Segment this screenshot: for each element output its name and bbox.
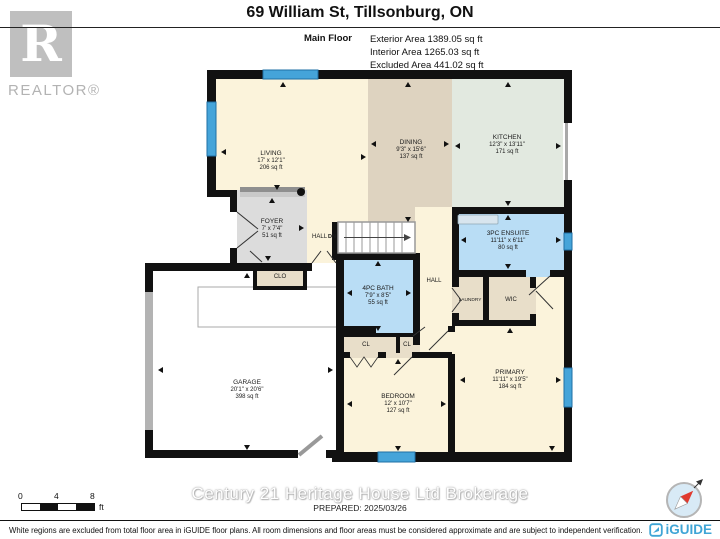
room-name: BEDROOM xyxy=(381,393,415,401)
iguide-logo: iGUIDE xyxy=(649,522,712,537)
hall-upper-label: HALL DN xyxy=(312,234,336,240)
room-dims: 11'11" x 6'11" xyxy=(487,238,530,245)
room-name: 4PC BATH xyxy=(362,285,393,293)
room-dims: 20'1" x 20'6" xyxy=(231,387,264,394)
room-dims: 12'3" x 13'11" xyxy=(489,142,525,149)
room-label-garage: GARAGE 20'1" x 20'6" 398 sq ft xyxy=(231,379,264,401)
garage-bulkhead-outline xyxy=(198,287,338,327)
iguide-wordmark: iGUIDE xyxy=(665,522,712,537)
room-area: 80 sq ft xyxy=(487,245,530,252)
room-name: LIVING xyxy=(257,150,284,158)
room-label-ensuite: 3PC ENSUITE 11'11" x 6'11" 80 sq ft xyxy=(487,230,530,252)
brokerage-watermark: Century 21 Heritage House Ltd Brokerage xyxy=(0,484,720,504)
floorplan-canvas xyxy=(0,0,720,539)
room-name: GARAGE xyxy=(231,379,264,387)
room-dims: 7'9" x 8'5" xyxy=(362,293,393,300)
room-label-living: LIVING 17' x 12'1" 206 sq ft xyxy=(257,150,284,172)
room-area: 398 sq ft xyxy=(231,394,264,401)
room-name: PRIMARY xyxy=(492,369,527,377)
room-name: DINING xyxy=(396,139,426,147)
room-name: KITCHEN xyxy=(489,134,525,142)
ensuite-vanity xyxy=(458,215,498,224)
room-dims: 12' x 10'7" xyxy=(381,401,415,408)
garage-door xyxy=(145,292,153,430)
iguide-icon xyxy=(649,523,663,537)
room-area: 137 sq ft xyxy=(396,154,426,161)
down-label: DN xyxy=(328,234,336,240)
room-label-kitchen: KITCHEN 12'3" x 13'11" 171 sq ft xyxy=(489,134,525,156)
room-dims: 7' x 7'4" xyxy=(261,226,283,233)
patio-door xyxy=(563,123,573,180)
room-area: 51 sq ft xyxy=(261,233,283,240)
hall-lower-label: HALL xyxy=(426,278,441,284)
room-dims: 9'3" x 15'6" xyxy=(396,147,426,154)
stairs xyxy=(338,222,415,253)
closet-cl2-label: CL xyxy=(403,342,411,348)
prepared-date: PREPARED: 2025/03/26 xyxy=(0,503,720,513)
hall-text: HALL xyxy=(312,234,327,240)
room-name: FOYER xyxy=(261,218,283,226)
wic-label: WIC xyxy=(505,297,517,303)
room-area: 55 sq ft xyxy=(362,300,393,307)
laundry-label: LAUNDRY xyxy=(459,298,482,303)
room-label-dining: DINING 9'3" x 15'6" 137 sq ft xyxy=(396,139,426,161)
foyer-railing xyxy=(240,187,305,197)
room-area: 171 sq ft xyxy=(489,149,525,156)
room-area: 184 sq ft xyxy=(492,384,527,391)
room-area: 127 sq ft xyxy=(381,408,415,415)
closet-cl1-label: CL xyxy=(362,342,370,348)
room-label-primary: PRIMARY 11'11" x 19'5" 184 sq ft xyxy=(492,369,527,391)
room-name: 3PC ENSUITE xyxy=(487,230,530,238)
room-dims: 11'11" x 19'5" xyxy=(492,377,527,384)
room-label-bedroom: BEDROOM 12' x 10'7" 127 sq ft xyxy=(381,393,415,415)
room-area: 206 sq ft xyxy=(257,165,284,172)
room-label-bath: 4PC BATH 7'9" x 8'5" 55 sq ft xyxy=(362,285,393,307)
room-label-foyer: FOYER 7' x 7'4" 51 sq ft xyxy=(261,218,283,240)
room-dims: 17' x 12'1" xyxy=(257,158,284,165)
closet-clo-label: CLO xyxy=(274,274,286,280)
